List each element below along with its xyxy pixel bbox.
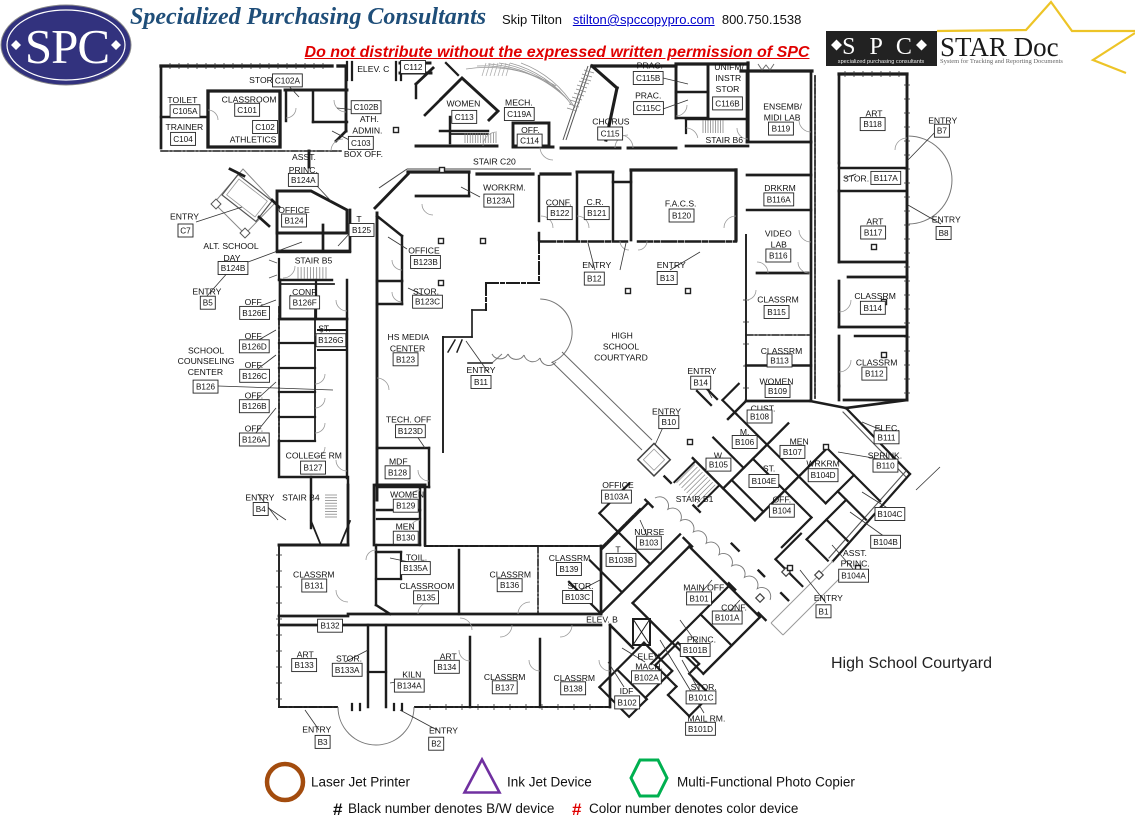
svg-text:B4: B4 [256,505,266,514]
svg-text:CENTER: CENTER [188,367,223,377]
svg-text:B12: B12 [587,275,602,284]
svg-text:ART: ART [297,650,315,660]
svg-text:C101: C101 [237,106,257,115]
svg-text:TOILET: TOILET [167,95,198,105]
svg-text:ATH.: ATH. [360,114,379,124]
svg-text:CLASSRM: CLASSRM [854,291,896,301]
svg-text:B123D: B123D [398,427,423,436]
svg-text:B135A: B135A [403,564,428,573]
svg-text:CLASSRM: CLASSRM [757,295,799,305]
svg-text:B101A: B101A [715,614,740,623]
svg-text:B103B: B103B [609,556,634,565]
svg-text:B131: B131 [305,582,325,591]
svg-text:STOR.: STOR. [843,174,869,184]
svg-text:ELEV. B: ELEV. B [586,615,618,625]
svg-text:WORKRM.: WORKRM. [483,183,526,193]
svg-text:IDF: IDF [620,686,634,696]
svg-text:ENTRY: ENTRY [302,724,331,734]
svg-text:OFFICE: OFFICE [602,480,634,490]
svg-text:ELEV.: ELEV. [638,652,662,662]
svg-text:B133A: B133A [335,666,360,675]
svg-text:B116: B116 [769,252,788,261]
svg-text:CLASSRM: CLASSRM [490,570,532,580]
svg-text:SPC: SPC [25,19,109,74]
svg-text:B104B: B104B [873,538,898,547]
svg-text:B104A: B104A [841,572,866,581]
svg-text:STOR.: STOR. [691,682,717,692]
svg-text:C102A: C102A [275,76,301,85]
svg-text:STAIR C20: STAIR C20 [473,156,516,166]
svg-text:CLASSRM: CLASSRM [856,358,898,368]
svg-text:B139: B139 [559,565,579,574]
svg-text:COUNSELING: COUNSELING [178,356,235,366]
svg-text:Color number denotes color dev: Color number denotes color device [589,801,798,816]
svg-text:B104E: B104E [752,477,777,486]
svg-text:ELEV. C: ELEV. C [357,64,389,74]
svg-text:OFF.: OFF. [772,495,791,505]
svg-text:MIDI LAB: MIDI LAB [764,113,801,123]
svg-text:B104D: B104D [811,471,836,480]
svg-text:PRAC.: PRAC. [635,91,661,101]
svg-text:COURTYARD: COURTYARD [594,353,648,363]
svg-text:BOX OFF.: BOX OFF. [344,149,383,159]
svg-text:ART: ART [866,216,884,226]
svg-text:SCHOOL: SCHOOL [188,345,225,355]
svg-text:B126C: B126C [242,372,267,381]
svg-text:B104: B104 [772,507,792,516]
svg-text:C104: C104 [173,135,193,144]
svg-text:WOMEN: WOMEN [446,99,480,109]
svg-text:STAIR B5: STAIR B5 [295,255,333,265]
svg-text:ART: ART [865,108,883,118]
svg-text:ENTRY: ENTRY [687,366,716,376]
svg-text:B113: B113 [770,357,789,366]
svg-text:STOR.: STOR. [567,581,593,591]
svg-text:ENTRY: ENTRY [429,725,458,735]
svg-text:B5: B5 [203,299,213,308]
svg-text:NURSE: NURSE [634,527,664,537]
svg-text:C103: C103 [351,139,371,148]
svg-text:B2: B2 [431,740,441,749]
svg-text:B123A: B123A [487,197,512,206]
svg-text:VIDEO: VIDEO [765,229,792,239]
svg-text:ALT. SCHOOL: ALT. SCHOOL [203,241,258,251]
svg-text:CLASSROOM: CLASSROOM [399,581,454,591]
svg-text:OFFICE: OFFICE [408,246,440,256]
svg-text:STOR: STOR [716,84,740,94]
svg-text:C119A: C119A [507,110,532,119]
svg-text:B3: B3 [318,738,328,747]
svg-text:B126F: B126F [293,298,317,307]
svg-text:C.R.: C.R. [587,197,604,207]
svg-text:B108: B108 [750,413,770,422]
svg-text:HS MEDIA: HS MEDIA [388,332,430,342]
svg-text:B8: B8 [939,229,949,238]
svg-text:B101D: B101D [688,725,713,734]
svg-text:B112: B112 [865,370,884,379]
svg-text:B106: B106 [735,438,755,447]
svg-text:CHORUS: CHORUS [592,117,630,127]
svg-text:CLASSRM: CLASSRM [554,673,596,683]
svg-text:ST.: ST. [318,324,330,334]
svg-text:ASST.: ASST. [292,152,316,162]
svg-text:B122: B122 [550,209,570,218]
svg-text:STAIR B6: STAIR B6 [706,135,744,145]
svg-text:COLLEGE RM: COLLEGE RM [286,450,342,460]
svg-text:B125: B125 [352,226,372,235]
svg-text:B132: B132 [320,622,340,631]
svg-text:B130: B130 [396,534,416,543]
svg-text:B103: B103 [639,539,659,548]
svg-text:TOIL.: TOIL. [406,553,427,563]
svg-text:ENTRY: ENTRY [245,493,274,503]
svg-text:B138: B138 [564,684,584,693]
svg-text:ENSEMB/: ENSEMB/ [763,101,802,111]
svg-text:B117A: B117A [874,174,899,183]
svg-text:C102: C102 [255,123,275,132]
svg-text:CLASSRM: CLASSRM [549,553,591,563]
svg-text:B103C: B103C [565,593,590,602]
svg-text:B105: B105 [709,461,729,470]
svg-text:C113: C113 [455,113,474,122]
svg-text:C105A: C105A [172,107,198,116]
svg-text:T: T [356,214,362,224]
svg-text:B117: B117 [864,229,883,238]
svg-text:B126B: B126B [242,402,267,411]
svg-text:CLASSRM: CLASSRM [293,570,335,580]
svg-text:B121: B121 [587,209,607,218]
svg-text:OFF.: OFF. [521,125,540,135]
svg-text:WRKRM: WRKRM [806,459,839,469]
svg-text:INSTR: INSTR [715,73,741,83]
svg-text:KILN: KILN [402,670,421,680]
svg-text:B128: B128 [388,468,408,477]
svg-text:#: # [333,800,343,819]
svg-text:B133: B133 [295,661,315,670]
svg-text:C114: C114 [520,137,539,146]
svg-text:C116B: C116B [715,99,740,108]
svg-text:B129: B129 [396,502,416,511]
svg-text:Ink Jet Device: Ink Jet Device [507,775,592,790]
svg-text:DAY: DAY [223,253,240,263]
svg-text:B136: B136 [500,581,520,590]
svg-text:B120: B120 [672,212,692,221]
svg-text:ATHLETICS: ATHLETICS [230,135,277,145]
svg-text:B10: B10 [662,418,677,427]
svg-text:ENTRY: ENTRY [192,287,221,297]
svg-text:B101C: B101C [688,693,713,702]
svg-text:PRINC.: PRINC. [687,635,716,645]
svg-text:MECH.: MECH. [505,98,533,108]
svg-text:ENTRY: ENTRY [582,260,611,270]
svg-text:PRINC.: PRINC. [841,559,870,569]
svg-text:WOMEN: WOMEN [390,489,424,499]
svg-text:OFF.: OFF. [245,390,264,400]
svg-text:System for Tracking and Report: System for Tracking and Reporting Docume… [940,58,1063,65]
svg-text:MEN: MEN [396,522,415,532]
svg-text:C115B: C115B [636,74,661,83]
svg-text:B126G: B126G [318,336,344,345]
svg-text:ADMIN.: ADMIN. [352,125,382,135]
svg-text:B126: B126 [196,383,216,392]
svg-text:ENTRY: ENTRY [814,593,843,603]
svg-text:STOR.: STOR. [336,654,362,664]
svg-text:B101B: B101B [683,646,708,655]
svg-text:C7: C7 [180,227,191,236]
svg-text:#: # [572,800,582,819]
svg-text:OFFICE: OFFICE [278,205,310,215]
svg-text:B134: B134 [437,663,457,672]
svg-text:B124A: B124A [291,176,316,185]
svg-text:B126D: B126D [242,342,267,351]
svg-text:B134A: B134A [397,682,422,691]
svg-text:B123B: B123B [413,258,438,267]
svg-text:B103A: B103A [604,493,629,502]
svg-text:STAIR B4: STAIR B4 [282,493,320,503]
svg-text:F.A.C.S.: F.A.C.S. [665,198,697,208]
svg-text:B110: B110 [876,462,895,471]
svg-text:B102: B102 [618,698,638,707]
svg-text:Laser Jet Printer: Laser Jet Printer [311,775,411,790]
svg-text:specialized purchasing consult: specialized purchasing consultants [838,59,925,65]
svg-text:B101: B101 [689,594,709,603]
svg-text:ASST.: ASST. [843,548,867,558]
svg-text:TECH. OFF: TECH. OFF [386,415,431,425]
svg-text:HIGH: HIGH [611,331,632,341]
svg-text:B116A: B116A [767,195,792,204]
svg-text:TRAINER: TRAINER [166,122,204,132]
svg-text:C115C: C115C [636,104,661,113]
svg-text:OFF.: OFF. [245,360,264,370]
svg-text:B104C: B104C [877,510,902,519]
svg-text:ENTRY: ENTRY [652,406,681,416]
svg-text:Black number denotes B/W devic: Black number denotes B/W device [348,801,554,816]
svg-text:UNIFM/: UNIFM/ [714,62,744,72]
svg-text:CONF.: CONF. [546,197,572,207]
svg-text:B107: B107 [783,448,803,457]
svg-text:ENTRY: ENTRY [657,260,686,270]
svg-text:STAIR B1: STAIR B1 [676,494,714,504]
svg-text:B126A: B126A [242,436,267,445]
svg-text:LAB: LAB [771,239,788,249]
svg-text:B124: B124 [284,217,304,226]
svg-text:B14: B14 [693,379,708,388]
svg-text:C115: C115 [601,130,620,139]
svg-text:T: T [615,544,621,554]
svg-text:B114: B114 [864,304,883,313]
svg-text:ENTRY: ENTRY [467,365,496,375]
svg-text:B123C: B123C [415,298,440,307]
svg-text:OFF.: OFF. [245,297,264,307]
svg-text:MACH.: MACH. [635,662,663,672]
svg-text:B7: B7 [937,127,947,136]
svg-text:MAIL RM.: MAIL RM. [687,713,725,723]
svg-text:B119: B119 [772,125,791,134]
svg-text:Multi-Functional Photo Copier: Multi-Functional Photo Copier [677,775,855,790]
svg-text:B118: B118 [863,120,882,129]
svg-text:B1: B1 [818,607,828,616]
svg-text:ST.: ST. [763,464,775,474]
svg-text:B13: B13 [660,274,675,283]
svg-text:DRKRM: DRKRM [764,183,796,193]
svg-text:B115: B115 [767,308,786,317]
svg-text:STOR: STOR [249,75,273,85]
svg-text:B111: B111 [878,433,896,442]
svg-text:ENTRY: ENTRY [932,215,961,225]
svg-text:B123: B123 [396,355,416,364]
svg-text:OFF.: OFF. [245,424,264,434]
svg-text:ENTRY: ENTRY [170,212,199,222]
svg-text:S P C: S P C [842,34,916,60]
svg-text:B102A: B102A [634,673,659,682]
svg-text:CENTER: CENTER [390,343,425,353]
svg-text:B124B: B124B [221,264,246,273]
svg-text:B137: B137 [495,683,515,692]
svg-text:SCHOOL: SCHOOL [603,341,640,351]
svg-text:MAIN OFF.: MAIN OFF. [683,583,726,593]
svg-text:B11: B11 [474,378,488,387]
svg-text:B109: B109 [768,387,788,396]
svg-text:B127: B127 [303,464,323,473]
svg-text:C102B: C102B [354,103,380,112]
svg-text:C112: C112 [404,63,423,72]
svg-text:B135: B135 [416,593,436,602]
svg-text:MDF: MDF [389,456,408,466]
svg-text:B126E: B126E [242,309,267,318]
